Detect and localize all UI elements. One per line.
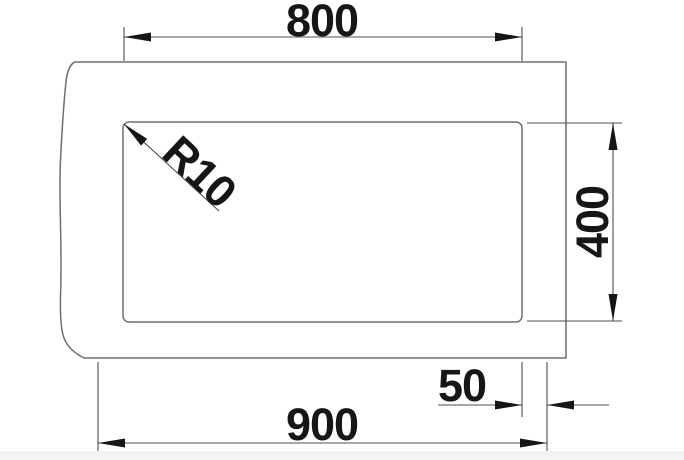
dim-label-r10: R10 xyxy=(153,126,246,218)
dim-900-arrow-right xyxy=(520,439,547,448)
r10-arrow xyxy=(124,124,147,146)
sink-outer-outline xyxy=(60,62,566,358)
dim-label-900: 900 xyxy=(286,399,358,450)
dim-400-arrow-bottom xyxy=(609,294,618,321)
dimension-drawing: 800 400 900 50 R10 xyxy=(0,0,684,460)
dim-800-arrow-right xyxy=(495,33,522,42)
dim-label-800: 800 xyxy=(286,0,358,46)
dim-800-arrow-left xyxy=(124,33,151,42)
dim-50-arrow-left xyxy=(495,401,522,410)
drawing-canvas: 800 400 900 50 R10 xyxy=(0,0,684,460)
dim-400-arrow-top xyxy=(609,123,618,150)
footer-bar xyxy=(0,452,684,460)
dim-50-arrow-right xyxy=(547,401,574,410)
dim-label-400: 400 xyxy=(567,186,618,258)
dim-label-50: 50 xyxy=(438,360,486,411)
dim-900-arrow-left xyxy=(98,439,125,448)
